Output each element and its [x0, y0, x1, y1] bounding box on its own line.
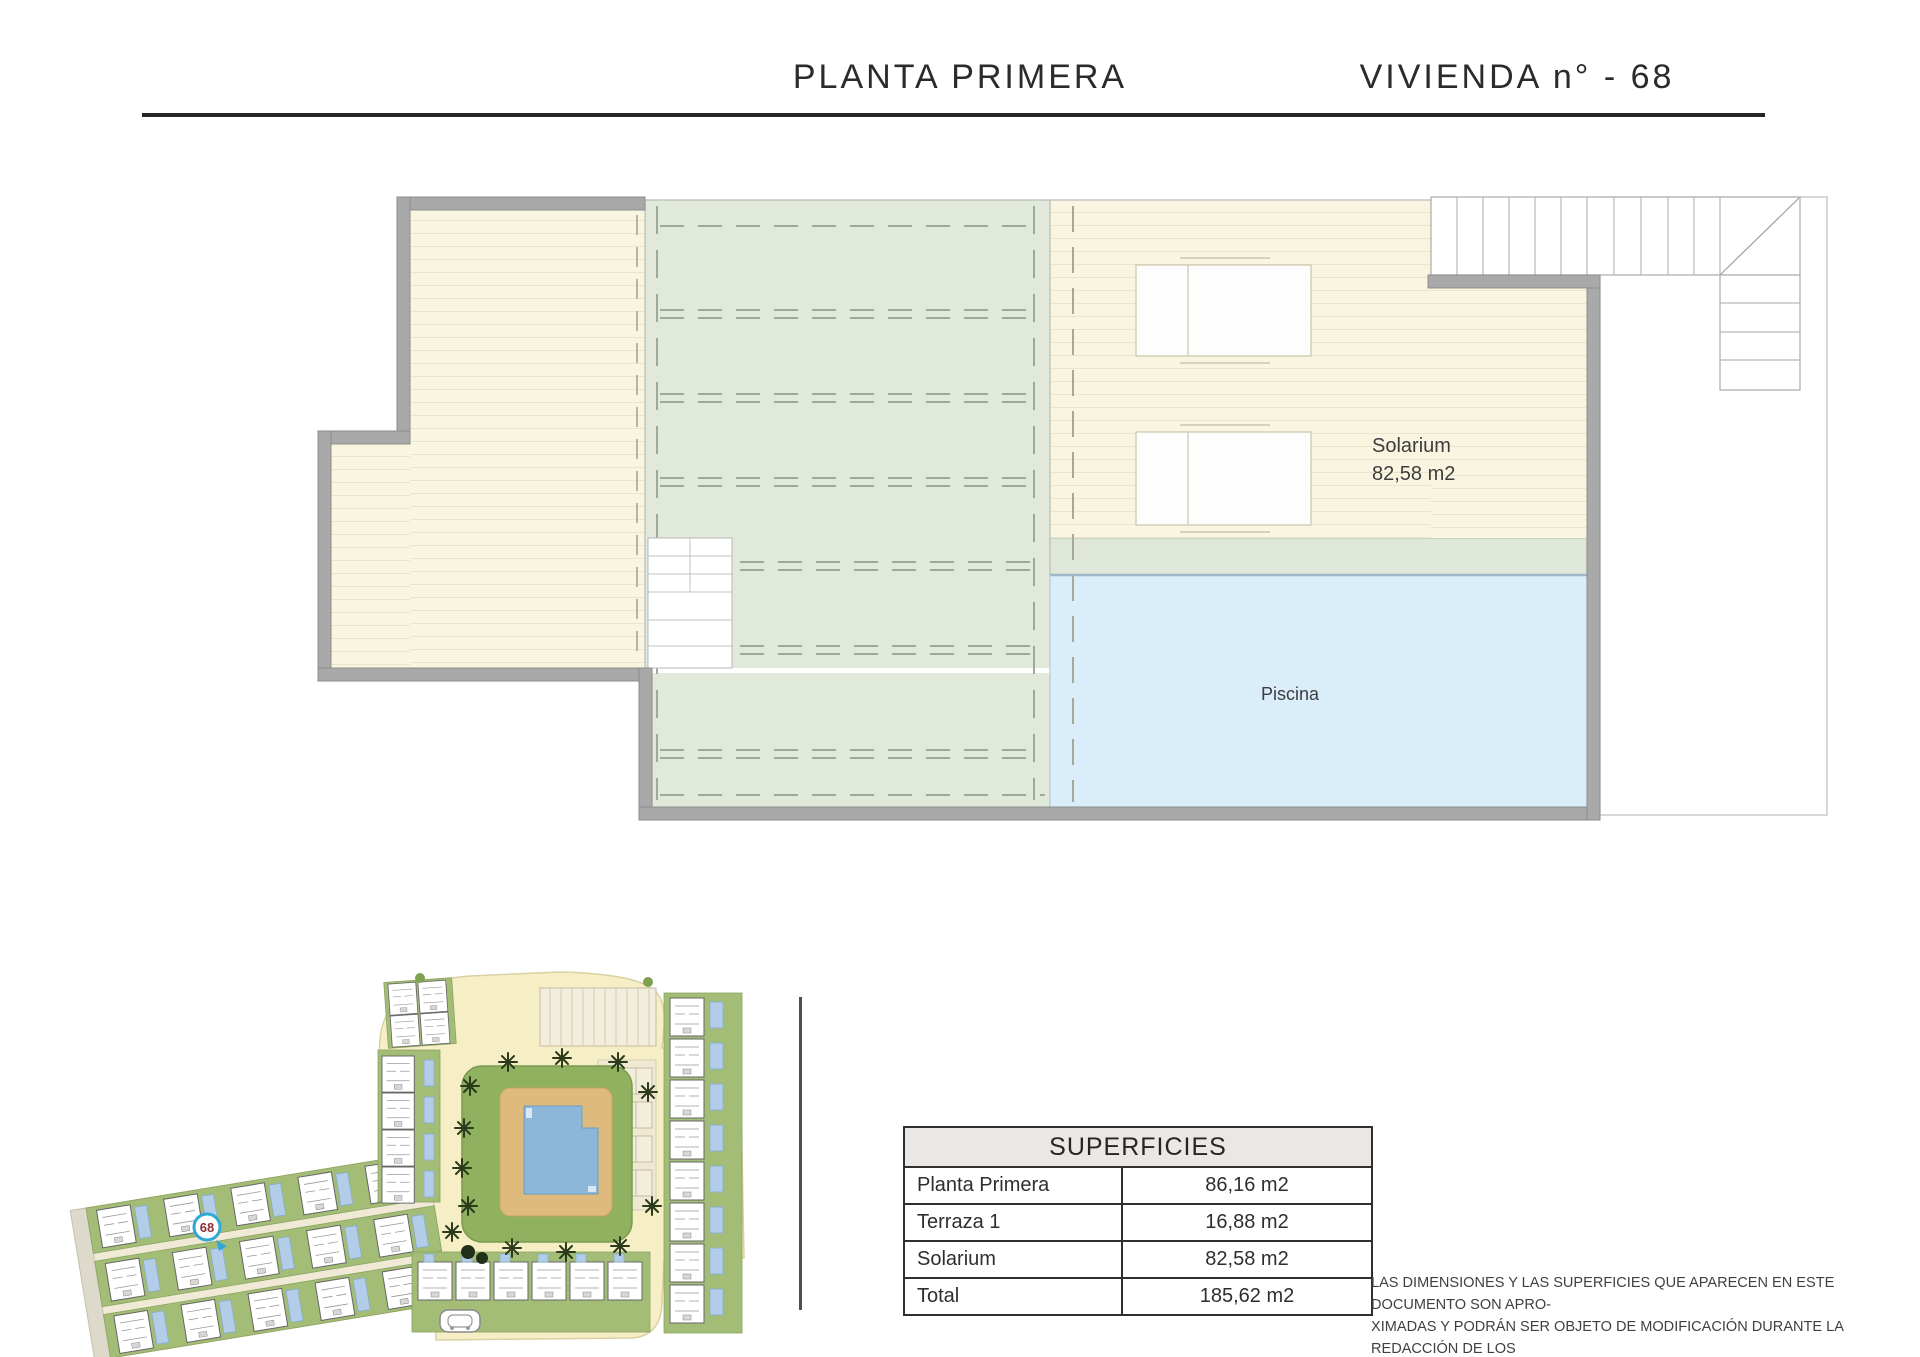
- site-right-wing: [664, 993, 742, 1333]
- surfaces-table-header: SUPERFICIES: [905, 1128, 1371, 1166]
- page: PLANTA PRIMERA VIVIENDA n° - 68: [0, 0, 1920, 1357]
- site-garden: [462, 1066, 632, 1242]
- site-centre-strip: [378, 1050, 440, 1203]
- table-row: Planta Primera 86,16 m2: [905, 1166, 1371, 1203]
- table-row: Terraza 1 16,88 m2: [905, 1203, 1371, 1240]
- disclaimer-text: LAS DIMENSIONES Y LAS SUPERFICIES QUE AP…: [1371, 1272, 1895, 1357]
- row-value: 185,62 m2: [1123, 1279, 1371, 1314]
- site-top-cluster: [384, 978, 456, 1049]
- table-row: Total 185,62 m2: [905, 1277, 1371, 1314]
- row-label: Planta Primera: [905, 1168, 1123, 1203]
- row-value: 86,16 m2: [1123, 1168, 1371, 1203]
- site-parking-top: [540, 988, 656, 1046]
- row-label: Solarium: [905, 1242, 1123, 1277]
- row-value: 16,88 m2: [1123, 1205, 1371, 1240]
- unit-68-badge-number: 68: [200, 1220, 214, 1235]
- car-icon: [440, 1310, 480, 1332]
- row-label: Total: [905, 1279, 1123, 1314]
- section-divider-line: [799, 997, 802, 1310]
- row-label: Terraza 1: [905, 1205, 1123, 1240]
- table-row: Solarium 82,58 m2: [905, 1240, 1371, 1277]
- surfaces-table: SUPERFICIES Planta Primera 86,16 m2 Terr…: [903, 1126, 1373, 1316]
- row-value: 82,58 m2: [1123, 1242, 1371, 1277]
